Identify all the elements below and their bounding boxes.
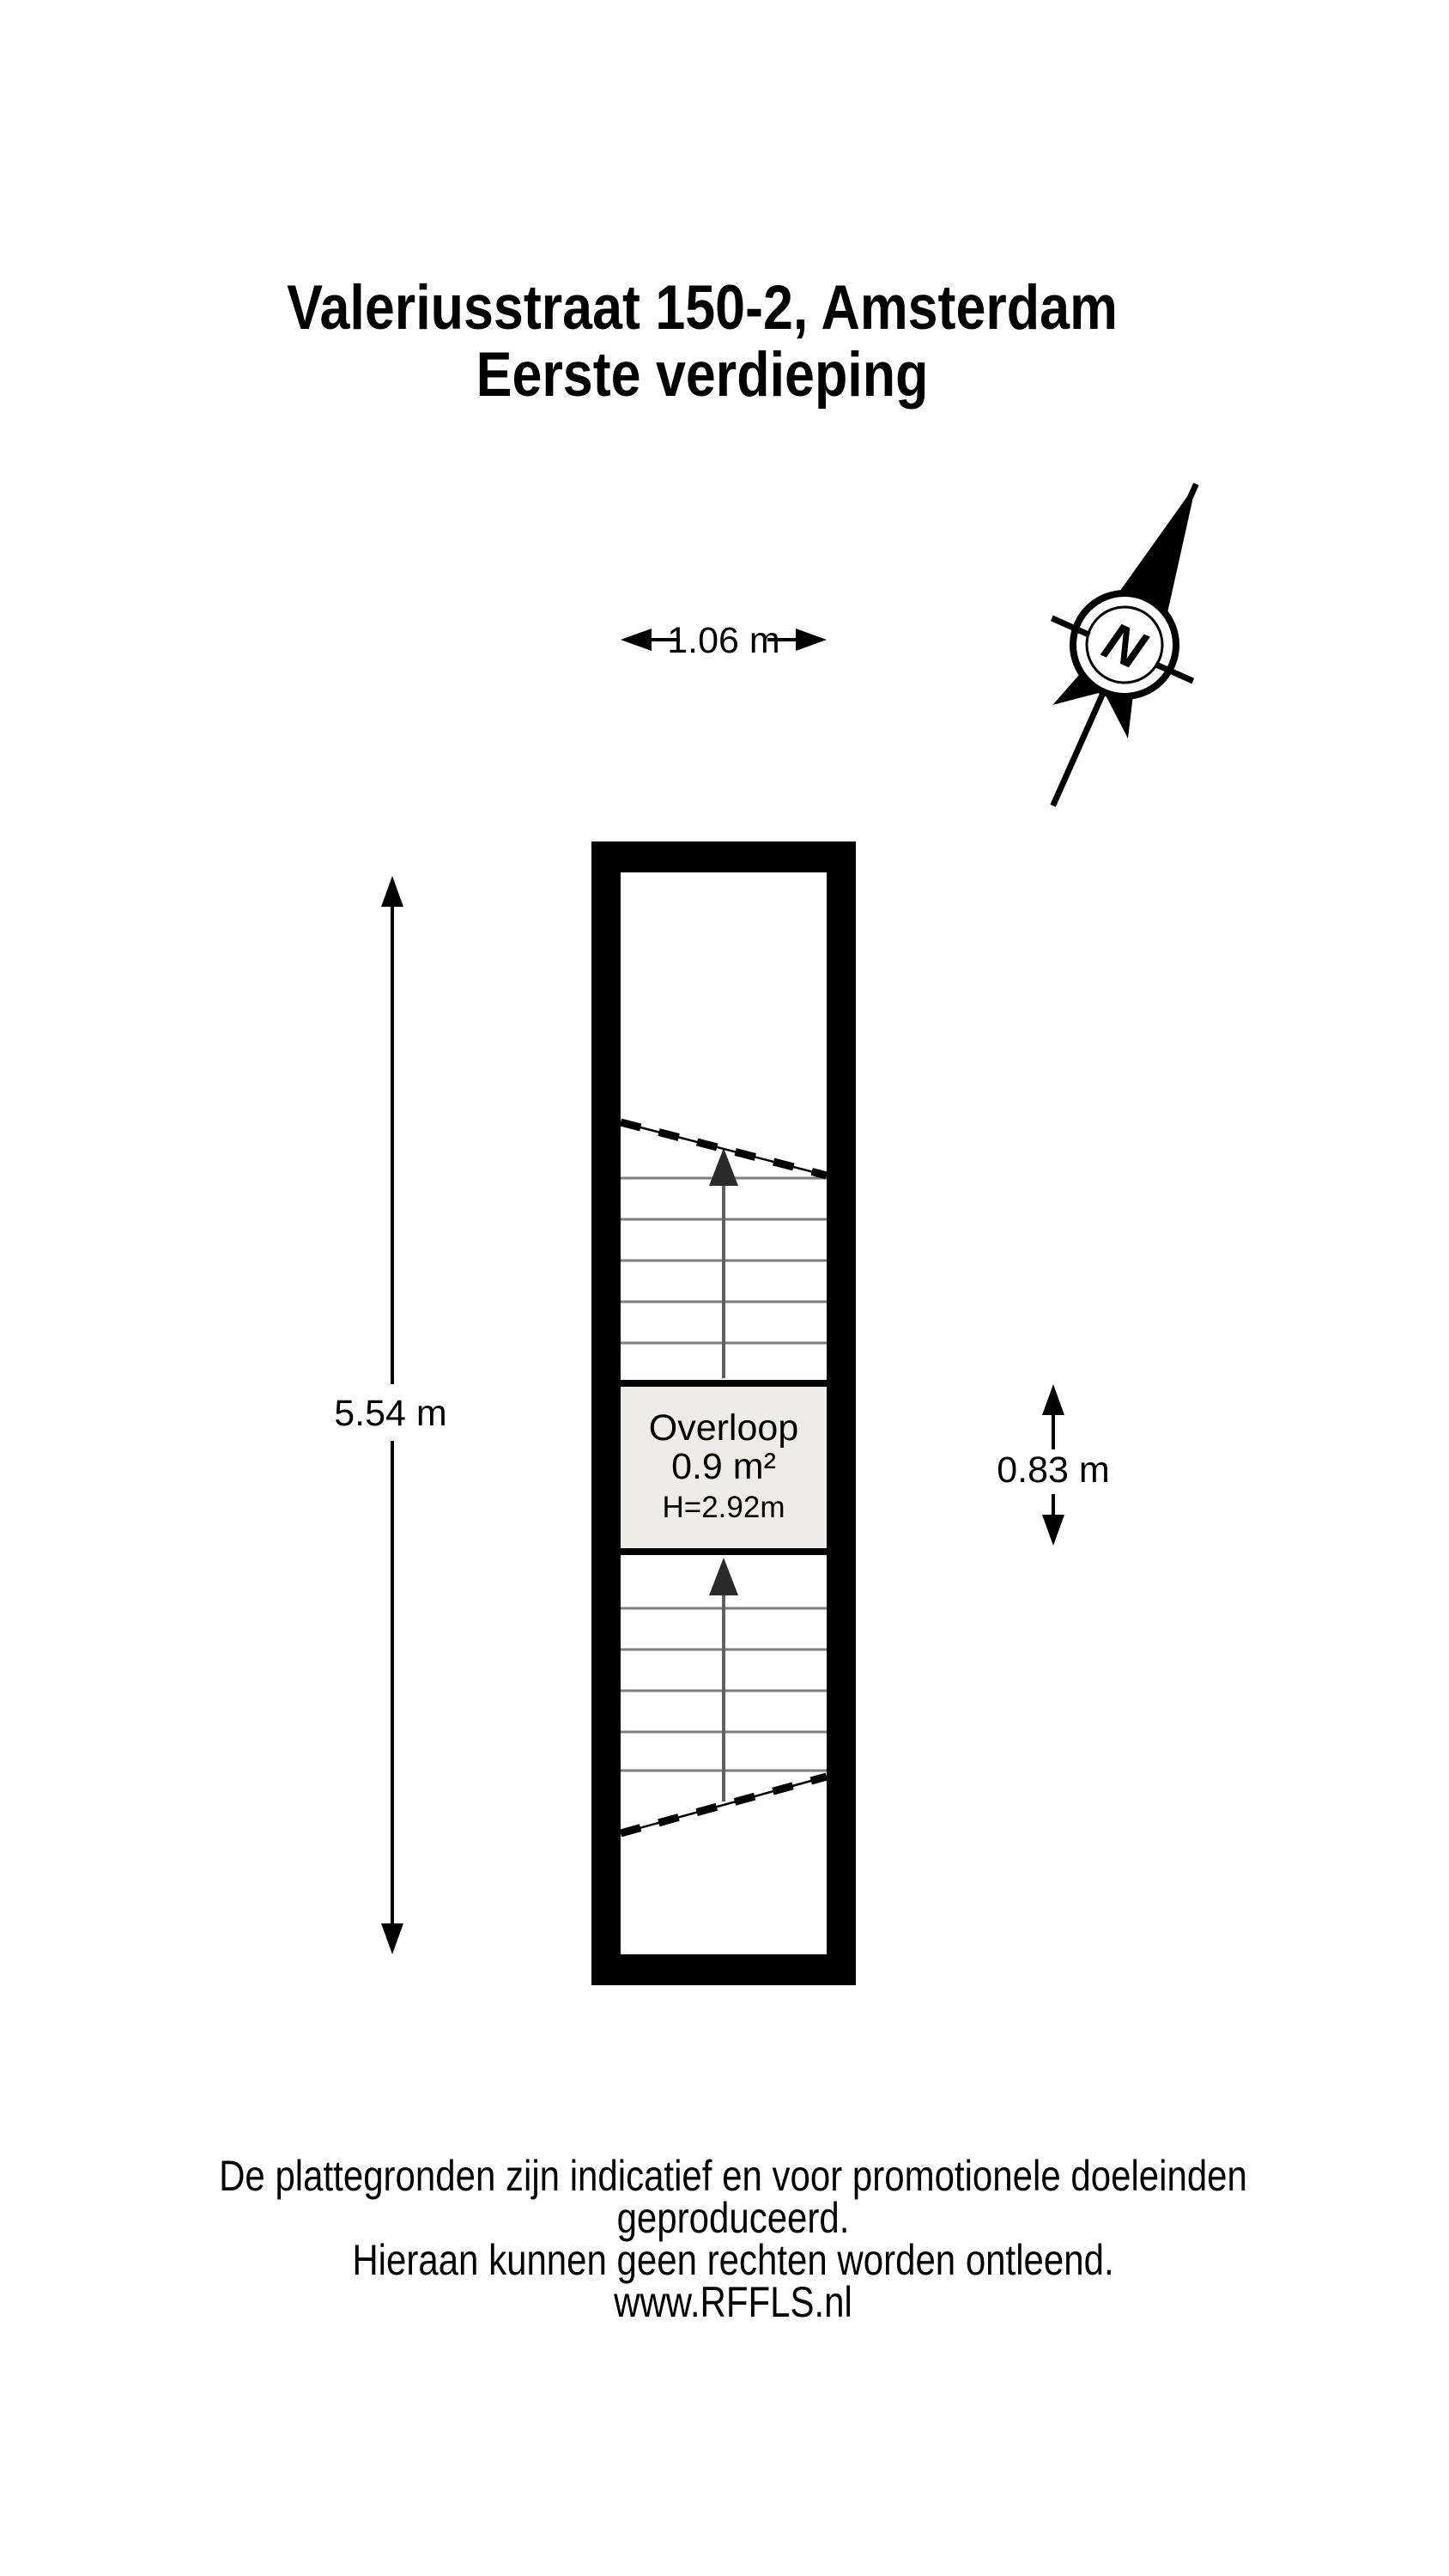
stair-flight-lower [621, 1558, 827, 1833]
footer-line-2: Hieraan kunnen geen rechten worden ontle… [124, 2239, 1342, 2281]
footer-line-1: De plattegronden zijn indicatief en voor… [124, 2155, 1342, 2239]
compass-north-icon: N [982, 453, 1266, 837]
dimension-width: 1.06 m [621, 620, 827, 661]
room-name-label: Overloop [649, 1407, 798, 1449]
dimension-height: 5.54 m [334, 876, 446, 1954]
dimension-landing: 0.83 m [997, 1384, 1109, 1546]
stair-direction-arrow-lower [709, 1558, 738, 1595]
stair-direction-arrow-upper [709, 1148, 738, 1186]
room-overloop: Overloop 0.9 m² H=2.92m [621, 1380, 827, 1555]
room-area-label: 0.9 m² [671, 1446, 776, 1487]
room-ceiling-height-label: H=2.92m [663, 1491, 785, 1524]
dimension-width-label: 1.06 m [667, 620, 779, 661]
footer-disclaimer: De plattegronden zijn indicatief en voor… [124, 2155, 1342, 2324]
stair-flight-upper [621, 1122, 827, 1378]
dimension-landing-label: 0.83 m [997, 1449, 1109, 1491]
footer-website: www.RFFLS.nl [124, 2281, 1342, 2324]
dimension-height-label: 5.54 m [334, 1393, 446, 1434]
